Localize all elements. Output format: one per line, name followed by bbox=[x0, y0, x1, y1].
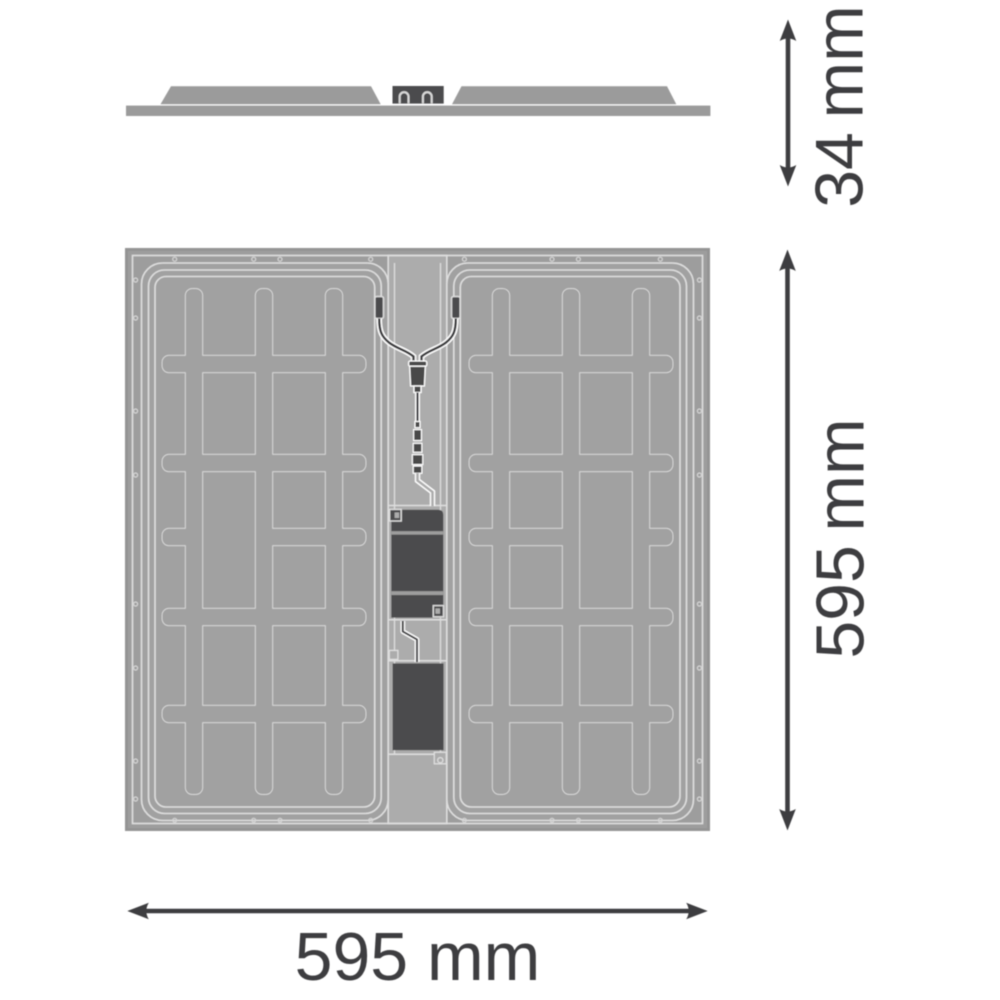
svg-text:34 mm: 34 mm bbox=[802, 5, 878, 208]
svg-text:595 mm: 595 mm bbox=[803, 418, 879, 658]
svg-text:595 mm: 595 mm bbox=[295, 919, 541, 995]
